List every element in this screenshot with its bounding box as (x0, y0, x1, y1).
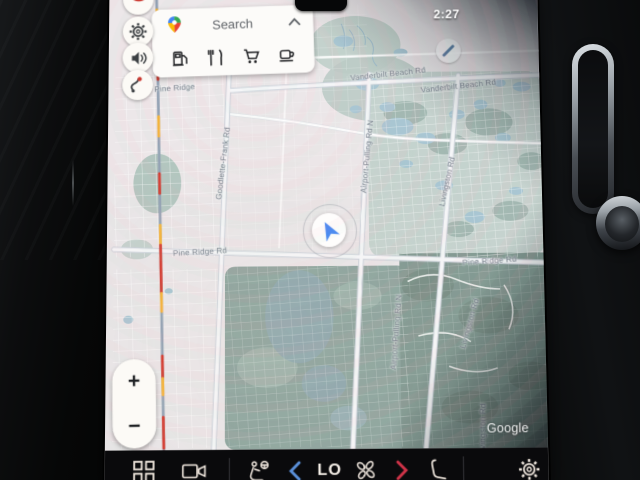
driver-seat-icon (248, 459, 270, 480)
camera-icon (182, 462, 206, 480)
vent-knob (596, 196, 640, 250)
camera-view-button[interactable] (176, 450, 213, 480)
car-dashboard-photo: Pine RidgeGoodlette-Frank RdVanderbilt B… (0, 0, 640, 480)
fan-button[interactable] (349, 449, 382, 480)
interior-left-trim (0, 0, 118, 480)
restaurant-icon[interactable] (207, 49, 224, 66)
chevron-left-icon (287, 460, 300, 480)
passenger-seat-climate-button[interactable] (420, 448, 455, 480)
air-vent (572, 44, 614, 214)
gear-icon (129, 22, 148, 40)
compass-icon[interactable] (436, 39, 461, 63)
climate-bar: LO (104, 448, 549, 480)
zoom-in-button[interactable]: + (112, 370, 156, 393)
driver-temperature-display[interactable]: LO (312, 449, 347, 480)
fan-icon (355, 459, 377, 480)
app-grid-icon (133, 461, 155, 480)
settings-button[interactable] (511, 448, 547, 480)
current-location-marker (312, 213, 346, 247)
driver-seat-climate-button[interactable] (241, 449, 278, 480)
zoom-out-button[interactable]: − (112, 415, 156, 438)
seat-icon (428, 459, 447, 480)
divider (463, 456, 464, 480)
shopping-cart-icon[interactable] (243, 47, 260, 64)
google-watermark: Google (487, 421, 529, 436)
chevron-up-icon[interactable] (287, 16, 301, 26)
mirror-silhouette (295, 0, 347, 11)
coffee-cup-icon[interactable] (278, 46, 295, 63)
search-card[interactable]: Search (152, 5, 315, 78)
divider (229, 458, 230, 480)
zoom-controls: + − (112, 359, 156, 449)
fuel-pump-icon[interactable] (172, 50, 189, 67)
app-launcher-button[interactable] (127, 450, 160, 480)
chevron-right-icon (395, 459, 409, 480)
speaker-icon (129, 50, 147, 66)
clock: 2:27 (433, 8, 459, 22)
infotainment-screen[interactable]: Pine RidgeGoodlette-Frank RdVanderbilt B… (104, 0, 549, 480)
chevron-right-button[interactable] (387, 448, 416, 480)
red-pin-badge-icon (129, 0, 147, 7)
navigation-arrow-icon (312, 213, 346, 247)
settings-gear-icon (518, 457, 541, 480)
route-icon (129, 77, 146, 94)
chevron-left-button[interactable] (280, 449, 309, 480)
